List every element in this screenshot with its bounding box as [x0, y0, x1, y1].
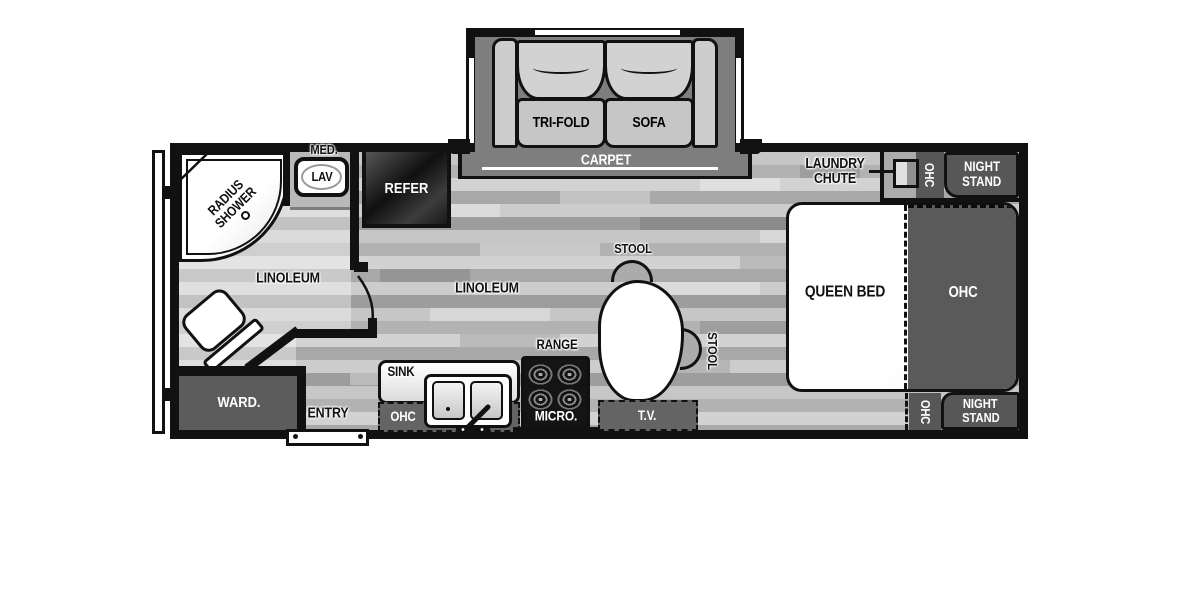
tv-label: T.V. — [638, 409, 656, 423]
sink-basin-right — [470, 381, 503, 420]
night-stand-top: NIGHT STAND — [944, 152, 1019, 198]
shower-drain — [241, 211, 250, 220]
queen-bed-label: QUEEN BED — [805, 285, 885, 302]
stool-top-label: STOOL — [614, 242, 651, 256]
stool-right-label: STOOL — [705, 332, 719, 369]
bath-partition-wall — [283, 152, 290, 206]
sink-drain — [446, 407, 450, 411]
range-burner — [556, 363, 583, 386]
kitchen-sink — [424, 374, 512, 428]
refrigerator: REFER — [362, 148, 451, 228]
entry-step-screw — [293, 434, 298, 439]
laundry-chute-pointer — [869, 170, 895, 173]
slideout-window-left — [469, 58, 474, 143]
sofa-armrest-left — [492, 38, 518, 148]
sofa-seat-left: TRI-FOLD — [516, 98, 606, 148]
bathroom-wall-horizontal — [295, 329, 377, 338]
laundry-chute-box — [893, 159, 919, 188]
front-cap-tab — [164, 186, 174, 199]
slideout-flange-right — [740, 139, 762, 154]
floor-plank — [430, 308, 550, 321]
front-cap-tab — [164, 388, 174, 401]
carpet-label: CARPET — [581, 153, 631, 168]
bathroom-wall-tick — [368, 318, 377, 331]
sink-basin-left — [432, 381, 465, 420]
med-label: MED. — [310, 143, 337, 157]
sofa-back-seam — [533, 62, 589, 74]
bathroom-wall-jog — [354, 262, 368, 272]
entry-label: ENTRY — [308, 406, 349, 421]
microwave-label: MICRO. — [535, 409, 577, 424]
sink-label: SINK — [387, 365, 414, 379]
linoleum-label-bath: LINOLEUM — [256, 271, 320, 286]
floor-plank — [560, 191, 650, 204]
ohc-bottom-dashed-edge — [905, 393, 908, 430]
sofa-armrest-right — [692, 38, 718, 148]
floor-plank — [480, 243, 600, 256]
entry-step — [286, 429, 369, 446]
entry-step-screw — [358, 434, 363, 439]
floor-plank — [700, 178, 780, 191]
sofa-seat-right: SOFA — [604, 98, 694, 148]
floor-plank — [640, 217, 790, 230]
slideout-flange-left — [448, 139, 470, 154]
slideout-window-top — [535, 30, 680, 35]
wardrobe: WARD. — [179, 374, 299, 430]
sofa-back-seam — [621, 62, 677, 74]
laundry-chute-label: LAUNDRY CHUTE — [805, 157, 864, 187]
linoleum-label-kitchen: LINOLEUM — [455, 281, 519, 296]
range-burner — [527, 363, 554, 386]
refer-label: REFER — [385, 180, 429, 197]
kitchen-ohc-label: OHC — [390, 410, 415, 424]
range-label: RANGE — [536, 338, 577, 352]
rv-floorplan: TRI-FOLD SOFA CARPET REFER RADIUS SHOWER… — [0, 0, 1200, 600]
night-stand-bottom: NIGHT STAND — [941, 392, 1020, 430]
bed-ohc-dashed-edge — [908, 205, 1019, 208]
slideout-window-right — [736, 58, 741, 143]
bathroom-wall-vertical — [350, 152, 359, 270]
wardrobe-top-wall — [179, 366, 306, 376]
sofa-label-left: TRI-FOLD — [525, 101, 597, 145]
sofa-label-right: SOFA — [613, 101, 685, 145]
lav-label: LAV — [311, 170, 332, 184]
range-pedestal — [513, 427, 598, 438]
bed-ohc-label: OHC — [948, 285, 977, 301]
wardrobe-right-wall — [297, 366, 306, 430]
wardrobe-label: WARD. — [218, 394, 261, 411]
bedroom-wall-line — [880, 152, 884, 200]
ohc-top-label: OHC — [922, 163, 936, 187]
sink-drain — [484, 407, 488, 411]
bed-ohc-divider — [904, 205, 907, 389]
ohc-bottom-label: OHC — [918, 400, 932, 424]
